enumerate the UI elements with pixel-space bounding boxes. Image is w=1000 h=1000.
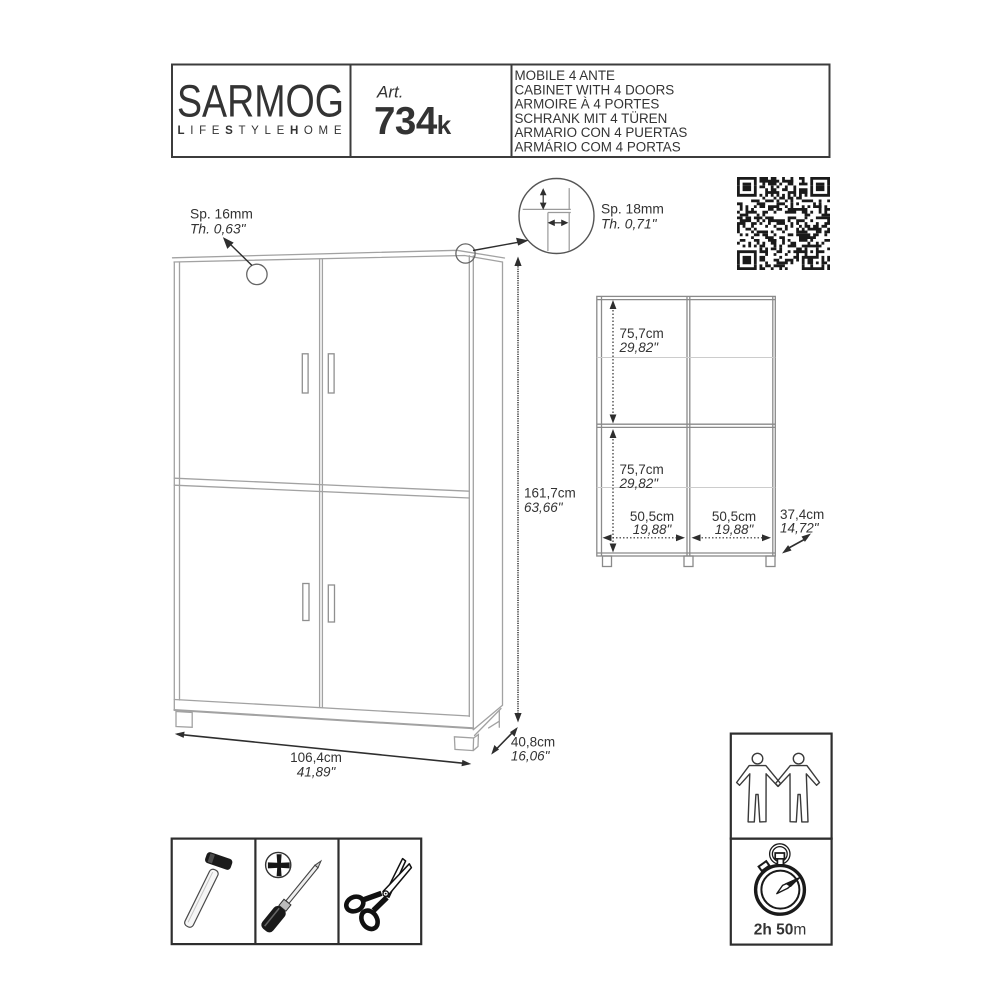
svg-text:19,88": 19,88" xyxy=(715,522,755,537)
svg-text:Th. 0,63": Th. 0,63" xyxy=(190,222,247,237)
svg-text:75,7cm: 75,7cm xyxy=(620,462,664,477)
svg-text:SCHRANK MIT 4 TÜREN: SCHRANK MIT 4 TÜREN xyxy=(515,111,668,126)
svg-text:ARMARIO CON 4 PUERTAS: ARMARIO CON 4 PUERTAS xyxy=(515,125,688,140)
svg-text:16,06": 16,06" xyxy=(511,749,551,764)
svg-text:SARMOG: SARMOG xyxy=(177,76,344,127)
svg-text:161,7cm: 161,7cm xyxy=(524,486,576,501)
svg-text:Th. 0,71": Th. 0,71" xyxy=(601,217,658,232)
svg-text:63,66": 63,66" xyxy=(524,500,564,515)
svg-text:40,8cm: 40,8cm xyxy=(511,735,555,750)
svg-text:Sp. 18mm: Sp. 18mm xyxy=(601,202,664,217)
svg-text:ARMÁRIO COM 4 PORTAS: ARMÁRIO COM 4 PORTAS xyxy=(515,140,681,155)
svg-text:Art.: Art. xyxy=(376,83,403,102)
svg-text:2h 50m: 2h 50m xyxy=(754,922,807,939)
svg-text:19,88": 19,88" xyxy=(633,522,673,537)
svg-text:CABINET WITH 4 DOORS: CABINET WITH 4 DOORS xyxy=(515,82,675,97)
svg-text:41,89": 41,89" xyxy=(297,765,337,780)
svg-text:75,7cm: 75,7cm xyxy=(620,326,664,341)
svg-text:29,82": 29,82" xyxy=(619,340,660,355)
svg-text:ARMOIRE À 4 PORTES: ARMOIRE À 4 PORTES xyxy=(515,97,660,112)
svg-text:14,72": 14,72" xyxy=(780,521,820,536)
svg-text:MOBILE 4 ANTE: MOBILE 4 ANTE xyxy=(515,68,616,83)
svg-text:Sp. 16mm: Sp. 16mm xyxy=(190,207,253,222)
svg-text:106,4cm: 106,4cm xyxy=(290,750,342,765)
svg-text:29,82": 29,82" xyxy=(619,476,660,491)
